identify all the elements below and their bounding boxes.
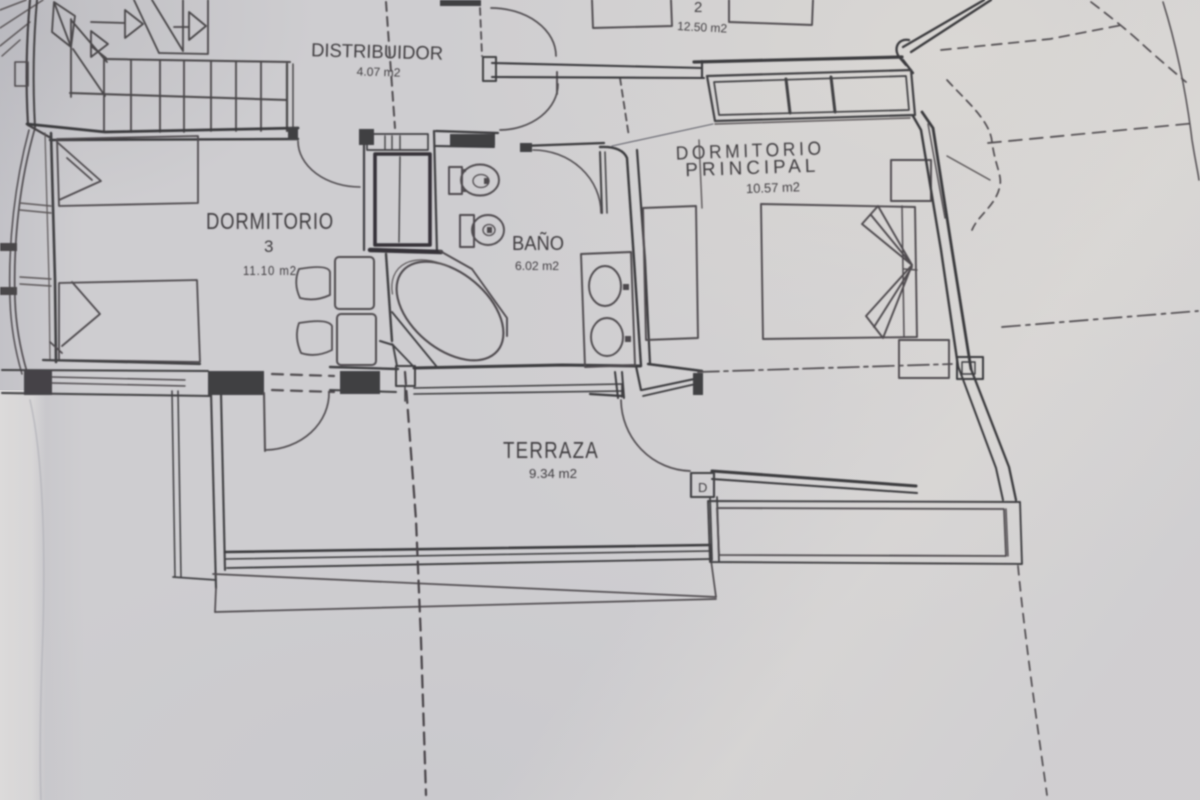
svg-text:3: 3	[264, 237, 274, 256]
svg-text:12.50 m2: 12.50 m2	[677, 19, 728, 36]
svg-text:6.02 m2: 6.02 m2	[515, 259, 559, 273]
svg-text:DISTRIBUIDOR: DISTRIBUIDOR	[311, 40, 444, 64]
svg-text:DORMITORIO: DORMITORIO	[206, 208, 334, 234]
svg-text:11.10 m2: 11.10 m2	[243, 264, 297, 278]
svg-text:10.57 m2: 10.57 m2	[746, 179, 800, 196]
svg-text:2: 2	[694, 0, 702, 16]
svg-text:4.07 m2: 4.07 m2	[356, 64, 401, 79]
svg-text:TERRAZA: TERRAZA	[503, 437, 599, 463]
svg-text:PRINCIPAL: PRINCIPAL	[685, 156, 820, 182]
svg-text:D: D	[698, 480, 707, 495]
svg-text:BAÑO: BAÑO	[512, 231, 564, 255]
svg-text:9.34 m2: 9.34 m2	[529, 467, 577, 481]
